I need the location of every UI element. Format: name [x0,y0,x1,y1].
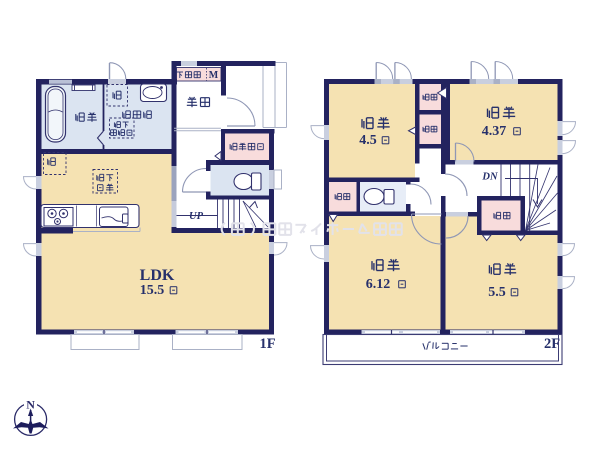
svg-text:M: M [209,70,219,81]
svg-text:6.12: 6.12 [366,277,391,292]
svg-text:5.5: 5.5 [488,285,506,300]
svg-text:DN: DN [481,172,498,183]
svg-text:UP: UP [189,211,204,222]
svg-text:2F: 2F [544,336,560,352]
svg-text:4.5: 4.5 [359,133,377,148]
svg-text:LDK: LDK [140,267,175,284]
svg-text:1F: 1F [259,336,275,352]
svg-text:15.5: 15.5 [140,283,165,298]
svg-text:4.37: 4.37 [482,124,507,139]
